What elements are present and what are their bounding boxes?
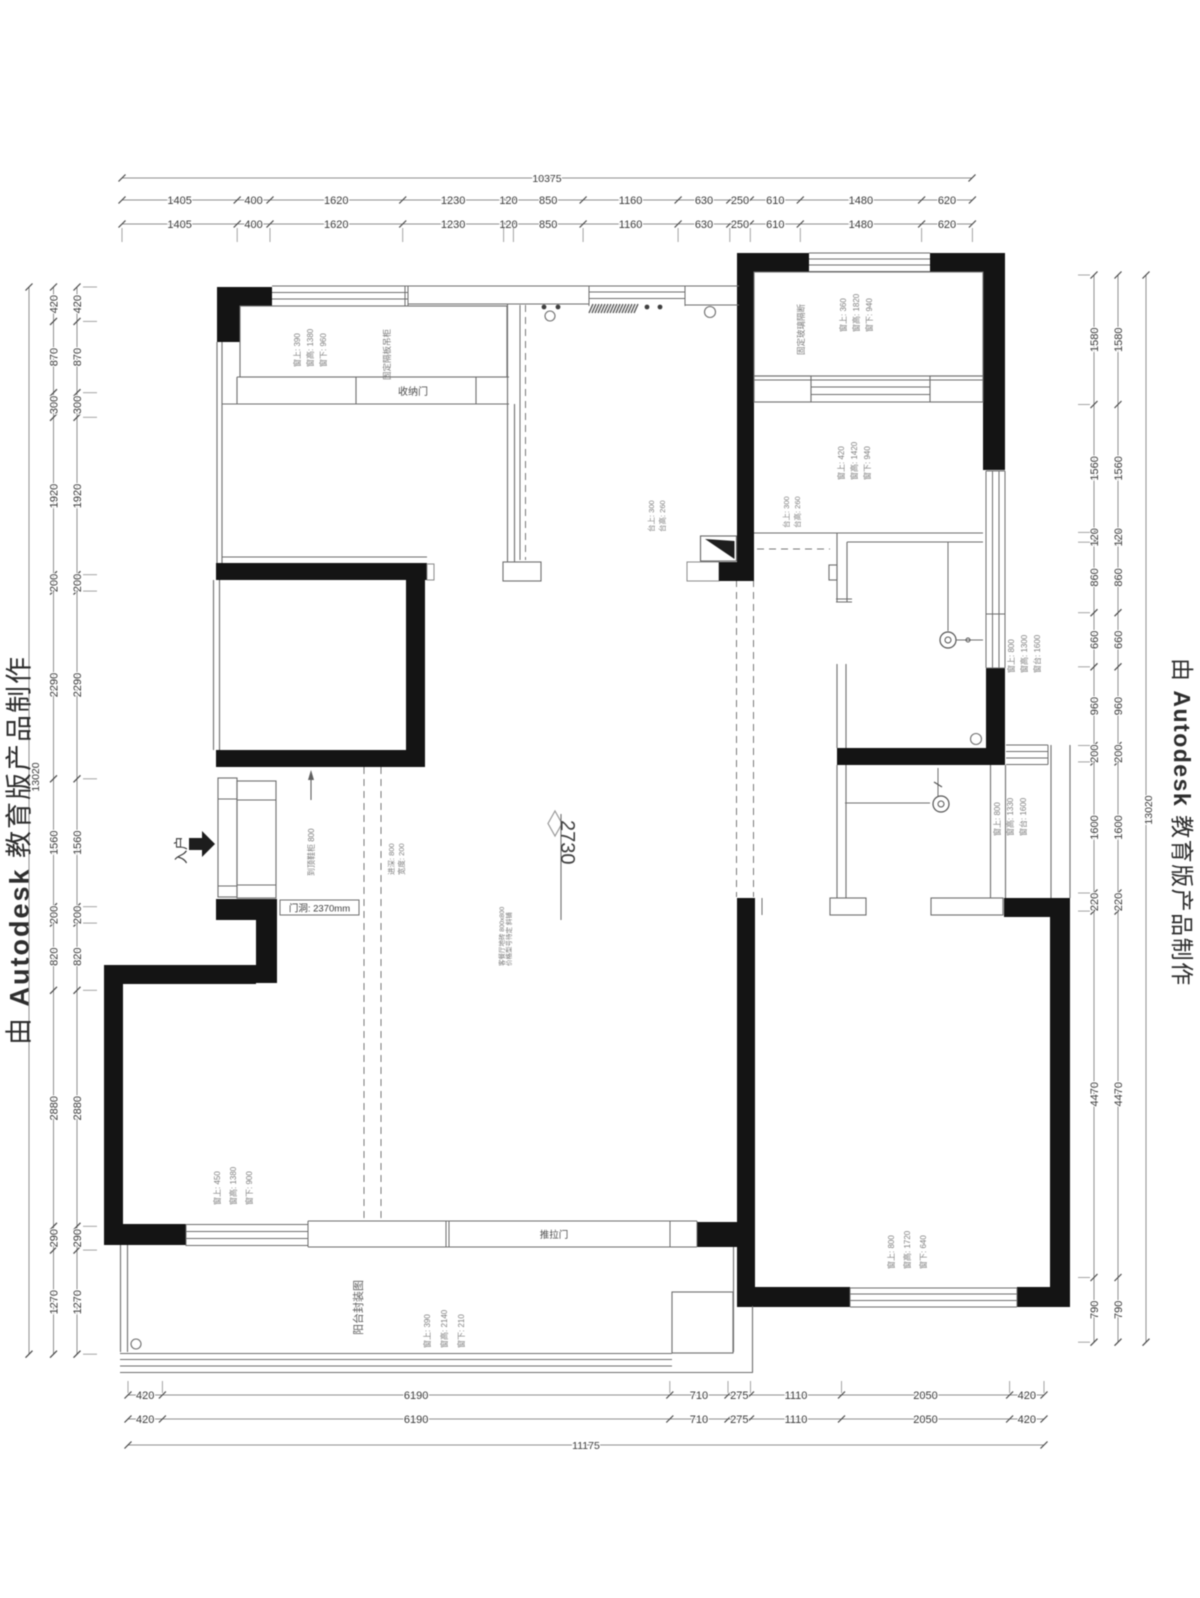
svg-text:由 Autodesk 教育版产品制作: 由 Autodesk 教育版产品制作: [1169, 658, 1195, 987]
svg-text:630: 630: [695, 219, 713, 231]
svg-text:120: 120: [499, 195, 517, 207]
svg-text:1920: 1920: [72, 484, 84, 508]
svg-text:960: 960: [1113, 697, 1125, 715]
svg-text:420: 420: [1018, 1390, 1036, 1402]
svg-text:进深: 800: 进深: 800: [387, 843, 396, 875]
svg-text:入户: 入户: [173, 836, 189, 864]
svg-text:1110: 1110: [785, 1390, 808, 1402]
svg-text:220: 220: [1089, 893, 1101, 911]
svg-text:220: 220: [1113, 893, 1125, 911]
svg-text:820: 820: [49, 948, 61, 966]
svg-text:1560: 1560: [1089, 456, 1101, 480]
svg-text:窗上: 390: 窗上: 390: [292, 333, 302, 367]
svg-text:窗高: 1300: 窗高: 1300: [1019, 634, 1029, 673]
svg-text:推拉门: 推拉门: [540, 1229, 569, 1241]
svg-text:710: 710: [690, 1414, 708, 1426]
svg-text:1480: 1480: [849, 219, 873, 231]
svg-text:790: 790: [1089, 1301, 1101, 1319]
svg-text:420: 420: [72, 295, 84, 313]
svg-text:13020: 13020: [1143, 795, 1155, 824]
svg-text:275: 275: [730, 1390, 748, 1402]
svg-text:由 Autodesk 教育版产品制作: 由 Autodesk 教育版产品制作: [5, 655, 35, 1045]
svg-text:1270: 1270: [72, 1290, 84, 1314]
svg-text:6190: 6190: [404, 1414, 428, 1426]
svg-text:850: 850: [539, 219, 557, 231]
svg-text:1580: 1580: [1089, 328, 1101, 352]
svg-text:1160: 1160: [619, 195, 643, 207]
svg-text:1230: 1230: [441, 195, 465, 207]
svg-text:860: 860: [1089, 568, 1101, 586]
svg-text:窗上: 420: 窗上: 420: [836, 446, 846, 480]
svg-text:2290: 2290: [72, 673, 84, 697]
svg-text:窗高: 1380: 窗高: 1380: [228, 1166, 238, 1205]
svg-text:790: 790: [1113, 1301, 1125, 1319]
svg-text:200: 200: [1113, 745, 1125, 763]
svg-text:660: 660: [1089, 631, 1101, 649]
svg-text:1560: 1560: [72, 830, 84, 854]
svg-text:420: 420: [49, 295, 61, 313]
svg-text:窗高: 1720: 窗高: 1720: [902, 1230, 912, 1269]
svg-text:窗高: 1820: 窗高: 1820: [851, 293, 861, 332]
svg-text:宽度: 200: 宽度: 200: [396, 843, 406, 875]
svg-text:400: 400: [244, 219, 262, 231]
svg-text:窗上: 360: 窗上: 360: [838, 298, 848, 332]
svg-text:台上: 300: 台上: 300: [646, 500, 656, 532]
svg-text:台高: 260: 台高: 260: [792, 496, 802, 528]
svg-text:固定玻璃隔断: 固定玻璃隔断: [796, 303, 806, 355]
svg-text:120: 120: [499, 219, 517, 231]
svg-text:门洞: 2370mm: 门洞: 2370mm: [289, 903, 350, 915]
svg-text:300: 300: [49, 396, 61, 414]
svg-text:420: 420: [136, 1390, 154, 1402]
svg-text:120: 120: [1089, 528, 1101, 546]
svg-text:200: 200: [49, 574, 61, 592]
svg-text:1160: 1160: [619, 219, 643, 231]
svg-text:台高: 260: 台高: 260: [657, 500, 667, 532]
svg-text:阳台封装图: 阳台封装图: [351, 1280, 365, 1335]
svg-text:290: 290: [49, 1229, 61, 1247]
svg-text:200: 200: [72, 574, 84, 592]
svg-text:窗下: 640: 窗下: 640: [918, 1235, 928, 1269]
svg-text:1480: 1480: [849, 195, 873, 207]
svg-text:420: 420: [1018, 1414, 1036, 1426]
svg-text:1405: 1405: [167, 195, 191, 207]
svg-text:250: 250: [731, 195, 749, 207]
svg-text:275: 275: [730, 1414, 748, 1426]
svg-text:窗上: 390: 窗上: 390: [422, 1314, 432, 1348]
svg-text:1405: 1405: [167, 219, 191, 231]
svg-text:1920: 1920: [49, 484, 61, 508]
svg-text:1580: 1580: [1113, 328, 1125, 352]
svg-text:窗下: 900: 窗下: 900: [244, 1171, 254, 1205]
svg-text:300: 300: [72, 396, 84, 414]
svg-text:250: 250: [731, 219, 749, 231]
svg-text:1620: 1620: [324, 195, 348, 207]
svg-text:台上: 300: 台上: 300: [781, 496, 791, 528]
svg-text:价格型号待定 斜铺: 价格型号待定 斜铺: [504, 912, 513, 966]
svg-text:610: 610: [766, 195, 784, 207]
svg-text:660: 660: [1113, 631, 1125, 649]
svg-text:客餐厅地砖 800x800: 客餐厅地砖 800x800: [497, 906, 506, 966]
svg-text:870: 870: [49, 348, 61, 366]
svg-text:窗下: 940: 窗下: 940: [864, 298, 874, 332]
svg-text:窗上: 800: 窗上: 800: [1006, 639, 1016, 673]
svg-text:2730: 2730: [556, 820, 578, 865]
svg-text:窗高: 1330: 窗高: 1330: [1005, 797, 1015, 836]
svg-text:1110: 1110: [785, 1414, 808, 1426]
svg-text:2880: 2880: [72, 1096, 84, 1120]
svg-text:窗高: 1420: 窗高: 1420: [849, 441, 859, 480]
svg-text:1560: 1560: [49, 830, 61, 854]
svg-text:1600: 1600: [1089, 815, 1101, 839]
svg-text:1560: 1560: [1113, 456, 1125, 480]
svg-text:到顶鞋柜 800: 到顶鞋柜 800: [306, 828, 316, 876]
svg-text:窗台: 1600: 窗台: 1600: [1018, 797, 1028, 836]
svg-text:200: 200: [49, 906, 61, 924]
svg-text:850: 850: [539, 195, 557, 207]
svg-text:420: 420: [136, 1414, 154, 1426]
svg-text:960: 960: [1089, 697, 1101, 715]
svg-text:窗下: 210: 窗下: 210: [456, 1314, 466, 1348]
svg-text:860: 860: [1113, 568, 1125, 586]
svg-text:窗高: 1380: 窗高: 1380: [305, 328, 315, 367]
svg-text:窗下: 940: 窗下: 940: [862, 446, 872, 480]
svg-text:820: 820: [72, 948, 84, 966]
svg-text:2050: 2050: [913, 1414, 937, 1426]
svg-text:1620: 1620: [324, 219, 348, 231]
svg-text:窗上: 450: 窗上: 450: [212, 1171, 222, 1205]
svg-text:620: 620: [938, 219, 956, 231]
svg-text:2290: 2290: [49, 673, 61, 697]
svg-text:870: 870: [72, 348, 84, 366]
svg-text:200: 200: [72, 906, 84, 924]
svg-text:窗下: 960: 窗下: 960: [318, 333, 328, 367]
svg-text:窗上: 800: 窗上: 800: [992, 802, 1002, 836]
svg-text:200: 200: [1089, 745, 1101, 763]
svg-text:1600: 1600: [1113, 815, 1125, 839]
svg-text:窗台: 1600: 窗台: 1600: [1032, 634, 1042, 673]
svg-text:收纳门: 收纳门: [398, 385, 428, 398]
svg-text:窗上: 800: 窗上: 800: [886, 1235, 896, 1269]
svg-text:610: 610: [766, 219, 784, 231]
svg-text:1230: 1230: [441, 219, 465, 231]
svg-text:620: 620: [938, 195, 956, 207]
svg-text:2880: 2880: [49, 1096, 61, 1120]
svg-text:4470: 4470: [1089, 1082, 1101, 1106]
svg-text:11175: 11175: [572, 1440, 600, 1452]
svg-text:固定隔板吊柜: 固定隔板吊柜: [382, 328, 392, 380]
svg-text:10375: 10375: [532, 173, 561, 185]
svg-text:630: 630: [695, 195, 713, 207]
svg-text:6190: 6190: [404, 1390, 428, 1402]
svg-text:120: 120: [1113, 528, 1125, 546]
svg-text:4470: 4470: [1113, 1082, 1125, 1106]
svg-text:2050: 2050: [913, 1390, 937, 1402]
svg-text:1270: 1270: [49, 1290, 61, 1314]
svg-text:400: 400: [244, 195, 262, 207]
svg-text:290: 290: [72, 1229, 84, 1247]
svg-text:710: 710: [690, 1390, 708, 1402]
svg-text:窗高: 2140: 窗高: 2140: [439, 1309, 449, 1348]
